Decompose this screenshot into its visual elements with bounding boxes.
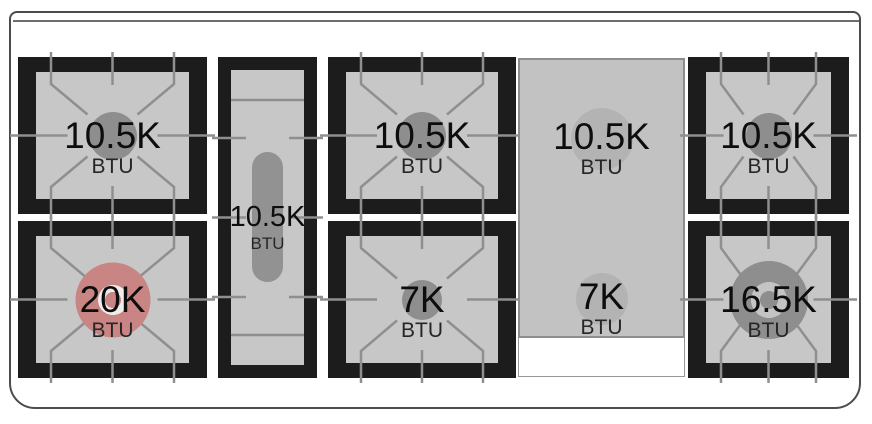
burner-btu-value: 10.5K xyxy=(688,117,849,154)
burner-label: 7K BTU xyxy=(328,281,516,341)
burner-btu-unit: BTU xyxy=(520,317,683,338)
burner-btu-value: 16.5K xyxy=(688,281,849,318)
burner-btu-value: 10.5K xyxy=(18,117,207,154)
burner-btu-value: 20K xyxy=(18,281,207,318)
burner-label: 10.5K BTU xyxy=(218,203,317,252)
burner-btu-unit: BTU xyxy=(688,320,849,341)
burner-label: 10.5K BTU xyxy=(328,117,516,177)
burner-label: 16.5K BTU xyxy=(688,281,849,341)
burner-middle-rear[interactable]: 10.5K BTU xyxy=(328,57,516,214)
burner-btu-value: 7K xyxy=(520,278,683,315)
burner-left-rear[interactable]: 10.5K BTU xyxy=(18,57,207,214)
burner-btu-unit: BTU xyxy=(18,156,207,177)
cooktop-back-ledge xyxy=(13,20,859,22)
burner-label: 10.5K BTU xyxy=(520,118,683,178)
burner-right-front[interactable]: 16.5K BTU xyxy=(688,221,849,378)
burner-center-oval[interactable]: 10.5K BTU xyxy=(218,57,317,378)
burner-btu-unit: BTU xyxy=(18,320,207,341)
cooktop-diagram: 10.5K BTU 20K BTU 10.5K BTU 10.5K BTU 7K xyxy=(0,0,872,424)
burner-btu-unit: BTU xyxy=(218,235,317,252)
burner-btu-unit: BTU xyxy=(328,320,516,341)
burner-right-rear[interactable]: 10.5K BTU xyxy=(688,57,849,214)
burner-btu-unit: BTU xyxy=(688,156,849,177)
burner-middle-front[interactable]: 7K BTU xyxy=(328,221,516,378)
burner-btu-unit: BTU xyxy=(520,157,683,178)
burner-label: 10.5K BTU xyxy=(18,117,207,177)
burner-label: 7K BTU xyxy=(520,278,683,338)
burner-btu-value: 10.5K xyxy=(520,118,683,155)
burner-label: 10.5K BTU xyxy=(688,117,849,177)
burner-btu-unit: BTU xyxy=(328,156,516,177)
burner-btu-value: 7K xyxy=(328,281,516,318)
burner-btu-value: 10.5K xyxy=(328,117,516,154)
griddle-plate[interactable]: 10.5K BTU 7K BTU xyxy=(518,58,685,338)
burner-left-front[interactable]: 20K BTU xyxy=(18,221,207,378)
burner-btu-value: 10.5K xyxy=(218,203,317,232)
burner-label: 20K BTU xyxy=(18,281,207,341)
griddle-lower-panel xyxy=(518,338,685,377)
